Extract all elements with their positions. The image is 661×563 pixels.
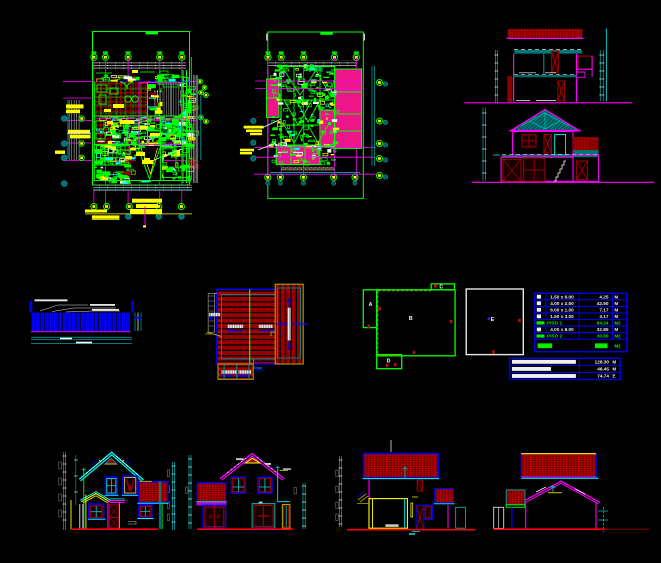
- svg-text:4.00 x 2.50: 4.00 x 2.50: [550, 301, 574, 306]
- svg-text:6.00 x 1.00: 6.00 x 1.00: [550, 307, 574, 312]
- svg-text:PISO 1: PISO 1: [547, 321, 563, 326]
- svg-text:30.80: 30.80: [597, 334, 609, 339]
- svg-text:3.17: 3.17: [599, 314, 609, 319]
- svg-text:M: M: [615, 327, 619, 332]
- svg-text:M: M: [615, 314, 619, 319]
- svg-text:A: A: [369, 302, 373, 308]
- svg-text:M2: M2: [615, 334, 622, 339]
- svg-text:PISO 2: PISO 2: [547, 334, 563, 339]
- svg-text:84.24: 84.24: [597, 321, 609, 326]
- svg-text:M: M: [615, 294, 619, 299]
- svg-text:B: B: [409, 316, 413, 322]
- svg-text:M: M: [613, 360, 617, 365]
- svg-text:M: M: [615, 307, 619, 312]
- svg-text:E: E: [613, 374, 616, 379]
- svg-text:E: E: [491, 317, 495, 323]
- svg-text:M: M: [615, 301, 619, 306]
- svg-text:32.85: 32.85: [597, 327, 609, 332]
- svg-text:74.74: 74.74: [597, 374, 609, 379]
- svg-text:4.00 x 8.00: 4.00 x 8.00: [550, 327, 574, 332]
- svg-text:7.17: 7.17: [599, 307, 609, 312]
- svg-text:128.30: 128.30: [595, 360, 610, 365]
- svg-text:M: M: [613, 367, 617, 372]
- svg-text:42.50: 42.50: [597, 301, 609, 306]
- svg-text:1.50 x 3.00: 1.50 x 3.00: [550, 314, 574, 319]
- svg-text:C: C: [439, 285, 443, 291]
- svg-text:1.50 x 6.00: 1.50 x 6.00: [550, 294, 574, 299]
- svg-text:46.45: 46.45: [597, 367, 609, 372]
- svg-text:M2: M2: [615, 321, 622, 326]
- svg-text:M2: M2: [615, 343, 622, 348]
- svg-text:D: D: [387, 358, 391, 364]
- svg-text:4.25: 4.25: [599, 294, 609, 299]
